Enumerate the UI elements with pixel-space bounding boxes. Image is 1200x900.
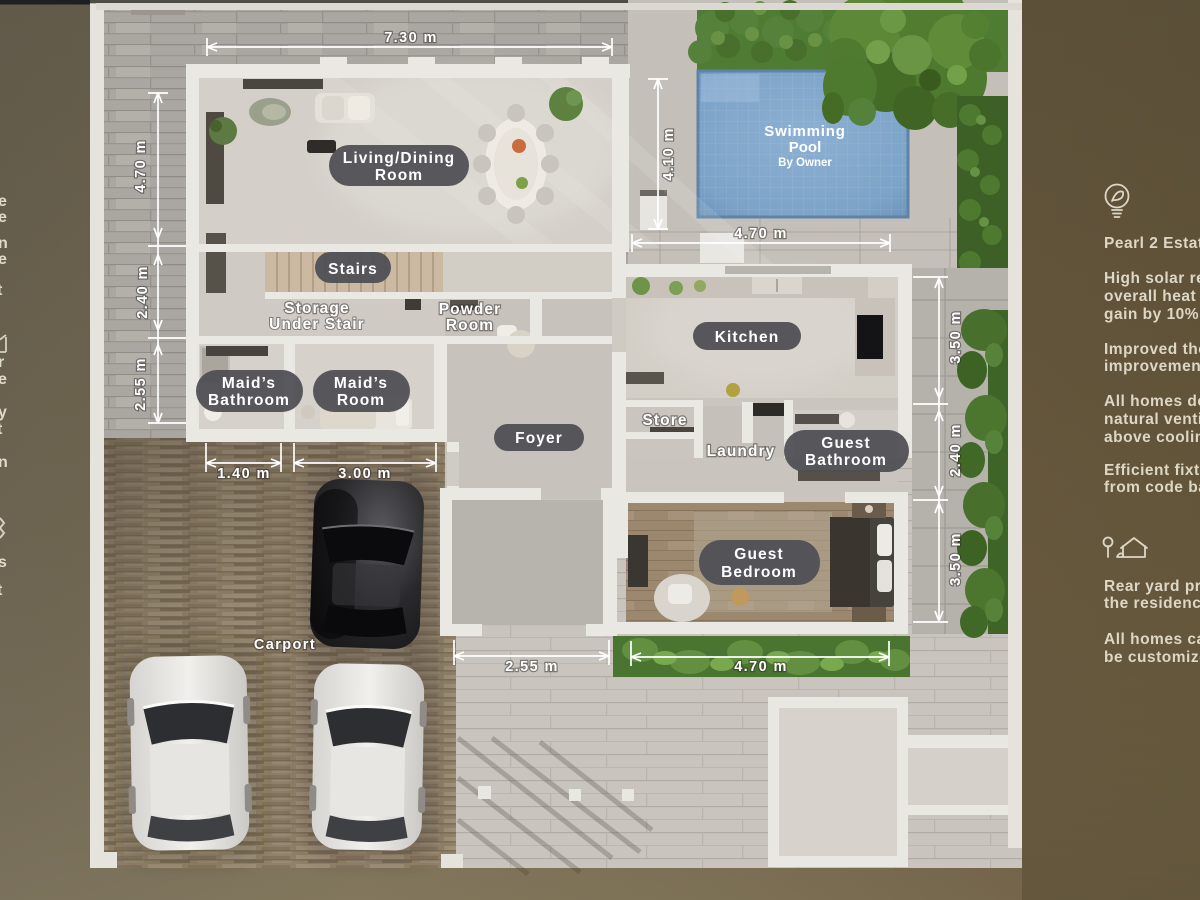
svg-text:Pearl 2 Estate: Pearl 2 Estate	[1104, 235, 1200, 252]
svg-text:y: y	[0, 404, 7, 421]
svg-text:the residences: the residences	[1104, 595, 1200, 612]
svg-text:from code base: from code base	[1104, 479, 1200, 496]
svg-text:Guest: Guest	[821, 435, 870, 452]
svg-text:Storage: Storage	[284, 300, 349, 317]
svg-text:r: r	[0, 354, 4, 371]
svg-text:above cooling l: above cooling l	[1104, 429, 1200, 446]
svg-text:Efficient fixture: Efficient fixture	[1104, 462, 1200, 479]
svg-text:Bathroom: Bathroom	[805, 452, 887, 469]
svg-text:e: e	[0, 371, 7, 388]
svg-text:gain by 10% m: gain by 10% m	[1104, 306, 1200, 323]
svg-text:e: e	[0, 251, 7, 268]
svg-text:Room: Room	[446, 317, 494, 334]
svg-text:natural ventilat: natural ventilat	[1104, 411, 1200, 428]
svg-text:Powder: Powder	[439, 301, 502, 318]
svg-text:be customized: be customized	[1104, 649, 1200, 666]
svg-text:2.55 m: 2.55 m	[133, 357, 149, 411]
svg-text:e: e	[0, 209, 7, 226]
svg-text:3.00 m: 3.00 m	[338, 466, 392, 482]
svg-text:2.40 m: 2.40 m	[948, 423, 964, 477]
svg-text:All homes can b: All homes can b	[1104, 631, 1200, 648]
svg-text:Pool: Pool	[789, 139, 822, 156]
svg-text:Bathroom: Bathroom	[208, 392, 290, 409]
svg-text:3.50 m: 3.50 m	[948, 532, 964, 586]
svg-text:n: n	[0, 454, 8, 471]
svg-text:4.70 m: 4.70 m	[133, 139, 149, 193]
svg-text:3.50 m: 3.50 m	[948, 310, 964, 364]
svg-text:Foyer: Foyer	[515, 430, 563, 447]
svg-text:Stairs: Stairs	[328, 261, 378, 278]
svg-text:Store: Store	[642, 412, 687, 429]
svg-text:4.70 m: 4.70 m	[734, 226, 788, 242]
svg-text:n: n	[0, 235, 8, 252]
svg-text:4.10 m: 4.10 m	[661, 127, 677, 181]
svg-text:Bedroom: Bedroom	[721, 564, 797, 581]
svg-text:By Owner: By Owner	[778, 157, 832, 169]
svg-text:Under Stair: Under Stair	[269, 316, 365, 333]
svg-text:Room: Room	[375, 167, 423, 184]
svg-text:Kitchen: Kitchen	[715, 329, 780, 346]
svg-text:Laundry: Laundry	[707, 443, 776, 460]
svg-text:e: e	[0, 193, 7, 210]
svg-text:High solar refle: High solar refle	[1104, 270, 1200, 287]
svg-text:Room: Room	[337, 392, 385, 409]
svg-text:improvement o: improvement o	[1104, 358, 1200, 375]
svg-text:7.30 m: 7.30 m	[384, 30, 438, 46]
svg-text:s: s	[0, 554, 7, 571]
svg-text:Swimming: Swimming	[764, 123, 845, 140]
svg-text:2.40 m: 2.40 m	[135, 265, 151, 319]
svg-text:All homes desig: All homes desig	[1104, 393, 1200, 410]
svg-text:2.55 m: 2.55 m	[505, 659, 559, 675]
svg-text:Improved therm: Improved therm	[1104, 341, 1200, 358]
svg-text:Rear yard priva: Rear yard priva	[1104, 578, 1200, 595]
svg-text:overall heat ga: overall heat ga	[1104, 288, 1200, 305]
svg-text:1.40 m: 1.40 m	[217, 466, 271, 482]
svg-text:4.70 m: 4.70 m	[734, 659, 788, 675]
svg-text:Guest: Guest	[734, 546, 783, 563]
svg-text:Maid’s: Maid’s	[334, 375, 388, 392]
svg-text:Carport: Carport	[254, 637, 316, 653]
svg-text:Living/Dining: Living/Dining	[343, 150, 455, 167]
svg-text:Maid’s: Maid’s	[222, 375, 276, 392]
